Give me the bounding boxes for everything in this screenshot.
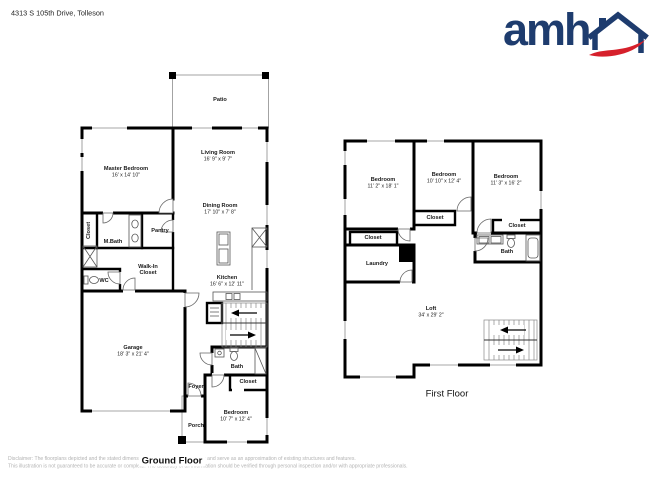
room-label-porch: Porch — [172, 423, 219, 429]
ground-porch-outline — [178, 396, 204, 444]
room-label-bedroom-left: Bedroom11' 2" x 18' 1" — [359, 177, 406, 189]
room-label-garage: Garage18' 3" x 21' 4" — [109, 345, 156, 357]
room-label-pantry: Pantry — [136, 228, 183, 234]
ground-floor-caption: Ground Floor — [139, 456, 206, 467]
room-label-bedroom-middle: Bedroom10' 10" x 12' 4" — [420, 172, 467, 184]
ground-floor-plan: Patio Master Bedroom16' x 14' 10" Living… — [60, 65, 290, 460]
amh-logo: amh — [503, 6, 649, 60]
room-label-bedroom-right: Bedroom11' 3" x 16' 2" — [482, 174, 529, 186]
room-label-living-room: Living Room16' 9" x 9' 7" — [194, 150, 241, 162]
ground-floor-stairs — [222, 303, 267, 347]
room-label-laundry: Laundry — [353, 261, 400, 267]
room-label-bedroom: Bedroom10' 7" x 12' 4" — [212, 410, 259, 422]
room-label-bath-first: Bath — [483, 249, 530, 255]
property-address: 4313 S 105th Drive, Tolleson — [11, 9, 104, 17]
ground-floor-drawing — [60, 65, 290, 460]
room-label-patio: Patio — [196, 97, 243, 103]
room-label-closet-middle: Closet — [411, 215, 458, 221]
room-label-master-bedroom: Master Bedroom16' x 14' 10" — [102, 166, 149, 178]
room-label-dining-room: Dining Room17' 10" x 7' 8" — [196, 203, 243, 215]
amh-house-icon — [587, 8, 649, 60]
room-label-closet-right: Closet — [493, 223, 540, 229]
room-label-loft: Loft34' x 29' 2" — [407, 306, 454, 318]
room-label-closet-left: Closet — [349, 235, 396, 241]
amh-wordmark: amh — [503, 6, 590, 54]
room-label-closet: Closet — [86, 207, 92, 254]
first-floor-caption: First Floor — [423, 389, 472, 400]
floorplan-page: 4313 S 105th Drive, Tolleson amh Disclai… — [0, 0, 650, 488]
disclaimer-line2: This illustration is not guaranteed to b… — [8, 463, 408, 471]
laundry-chase — [399, 245, 414, 262]
room-label-walk-in-closet: Walk-InCloset — [124, 264, 171, 276]
room-label-foyer: Foyer — [172, 384, 219, 390]
first-floor-stairs — [484, 320, 537, 360]
first-floor-plan: Bedroom11' 2" x 18' 1" Bedroom10' 10" x … — [340, 135, 550, 405]
room-label-bedroom-closet: Closet — [224, 379, 271, 385]
room-label-m-bath: M.Bath — [89, 239, 136, 245]
room-label-bath: Bath — [213, 364, 260, 370]
room-label-kitchen: Kitchen16' 6" x 12' 11" — [203, 275, 250, 287]
room-label-wc: WC — [80, 278, 127, 284]
